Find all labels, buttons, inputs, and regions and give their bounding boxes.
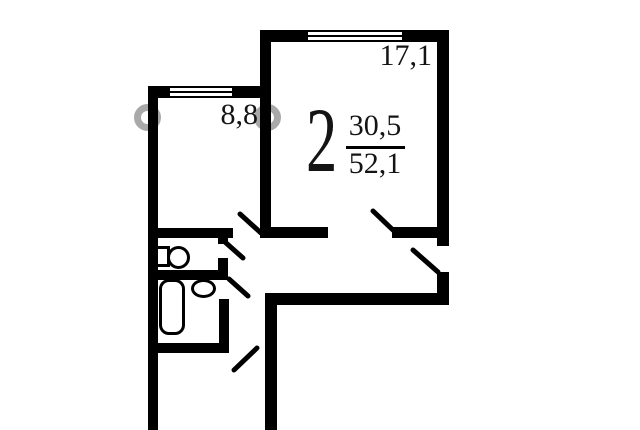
kitchen-area-label: 8,8 <box>168 100 258 130</box>
living-area-label: 30,5 <box>345 111 405 141</box>
door-leaf-living-icon <box>373 211 394 231</box>
living-room-area-label: 17,1 <box>342 41 432 71</box>
door-leaf-kitchen-icon <box>240 214 261 233</box>
door-leaf-entry-icon <box>234 348 257 370</box>
floor-plan: 17,1 8,8 2 30,5 52,1 <box>0 0 640 430</box>
rooms-count-label: 2 <box>306 94 337 186</box>
door-leaf-wc-icon <box>225 242 243 258</box>
door-leaves-layer <box>0 0 640 430</box>
total-area-label: 52,1 <box>345 149 405 179</box>
door-leaf-hall-icon <box>413 250 438 272</box>
door-leaf-bath-icon <box>229 279 248 296</box>
